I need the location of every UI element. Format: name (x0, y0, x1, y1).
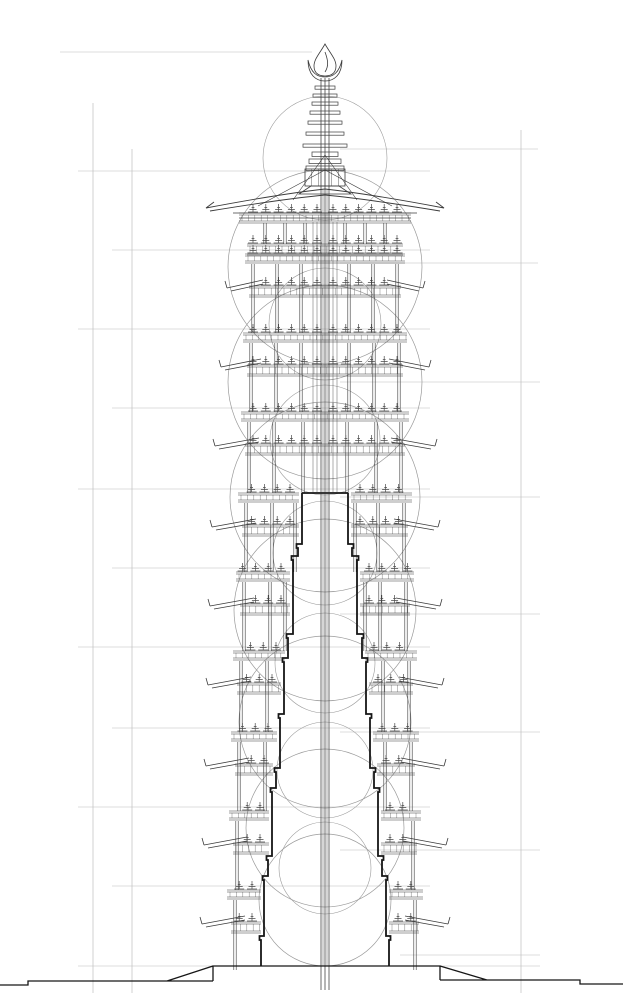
pagoda-section-drawing (0, 0, 623, 1000)
pagoda-elevation-svg (0, 0, 623, 1000)
